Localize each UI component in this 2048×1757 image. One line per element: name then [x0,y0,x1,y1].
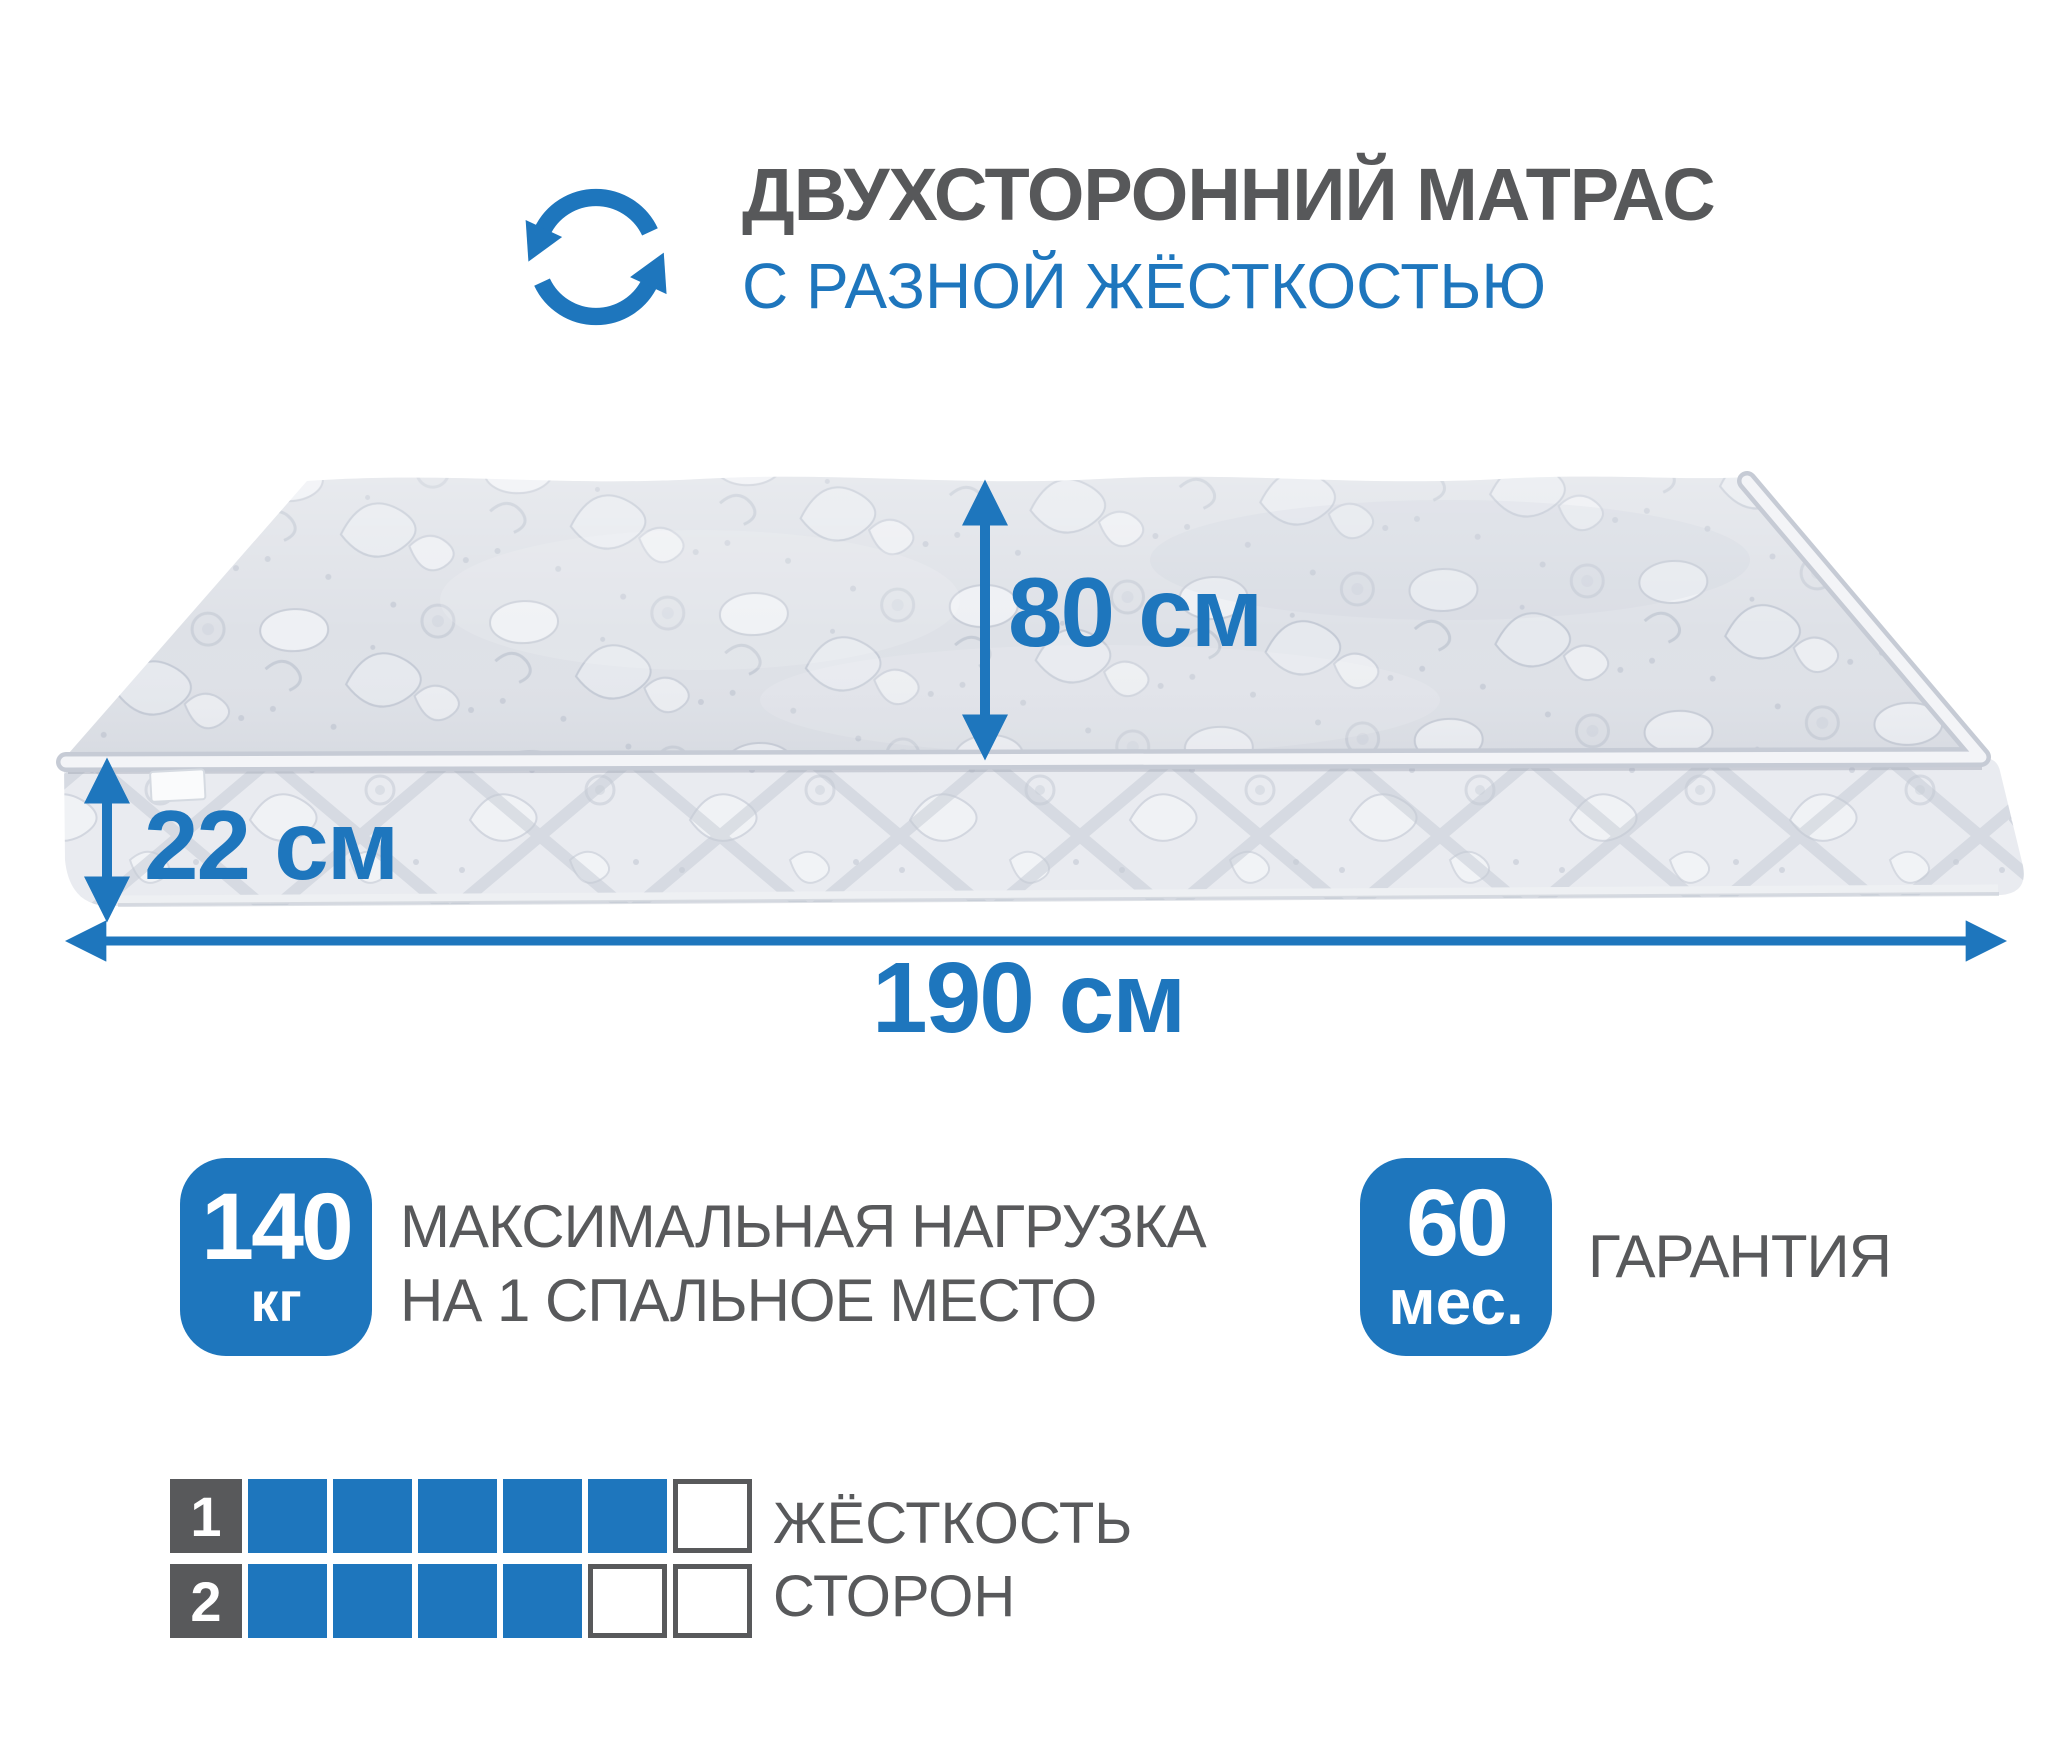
bed-length-label: 190 см [872,948,1184,1048]
max-load-label-line1: МАКСИМАЛЬНАЯ НАГРУЗКА [400,1190,1206,1264]
firmness-cell [673,1564,752,1638]
rotate-arrows-icon [500,172,692,342]
firmness-label-line2: СТОРОН [773,1560,1132,1633]
firmness-cell [503,1479,582,1553]
firmness-side-number: 1 [170,1479,242,1553]
firmness-cell [418,1564,497,1638]
max-load-label-line2: НА 1 СПАЛЬНОЕ МЕСТО [400,1264,1206,1338]
mattress-height-label: 22 см [144,796,397,894]
firmness-cell [248,1479,327,1553]
warranty-value: 60 [1360,1178,1552,1268]
firmness-cell [673,1479,752,1553]
firmness-cell [503,1564,582,1638]
firmness-row-side2: 2 [170,1564,752,1638]
mattress-infographic: ДВУХСТОРОННИЙ МАТРАС С РАЗНОЙ ЖЁСТКОСТЬЮ… [0,0,2048,1757]
warranty-unit: мес. [1360,1269,1552,1336]
max-load-badge: 140 кг [180,1158,372,1356]
header: ДВУХСТОРОННИЙ МАТРАС С РАЗНОЙ ЖЁСТКОСТЬЮ [742,158,1715,318]
max-load-value: 140 [180,1182,372,1272]
bed-width-label: 80 см [1008,563,1261,661]
warranty-label: ГАРАНТИЯ [1588,1220,1891,1294]
max-load-unit: кг [180,1273,372,1332]
firmness-cell [248,1564,327,1638]
max-load-label: МАКСИМАЛЬНАЯ НАГРУЗКА НА 1 СПАЛЬНОЕ МЕСТ… [400,1190,1206,1339]
firmness-row-side1: 1 [170,1479,752,1553]
firmness-cell [333,1479,412,1553]
firmness-cell [588,1564,667,1638]
firmness-cell [333,1564,412,1638]
page-title: ДВУХСТОРОННИЙ МАТРАС [742,158,1715,232]
firmness-cell [588,1479,667,1553]
firmness-label-line1: ЖЁСТКОСТЬ [773,1487,1132,1560]
firmness-label: ЖЁСТКОСТЬ СТОРОН [773,1487,1132,1633]
warranty-badge: 60 мес. [1360,1158,1552,1356]
firmness-side-number: 2 [170,1564,242,1638]
firmness-cell [418,1479,497,1553]
page-subtitle: С РАЗНОЙ ЖЁСТКОСТЬЮ [742,254,1715,318]
